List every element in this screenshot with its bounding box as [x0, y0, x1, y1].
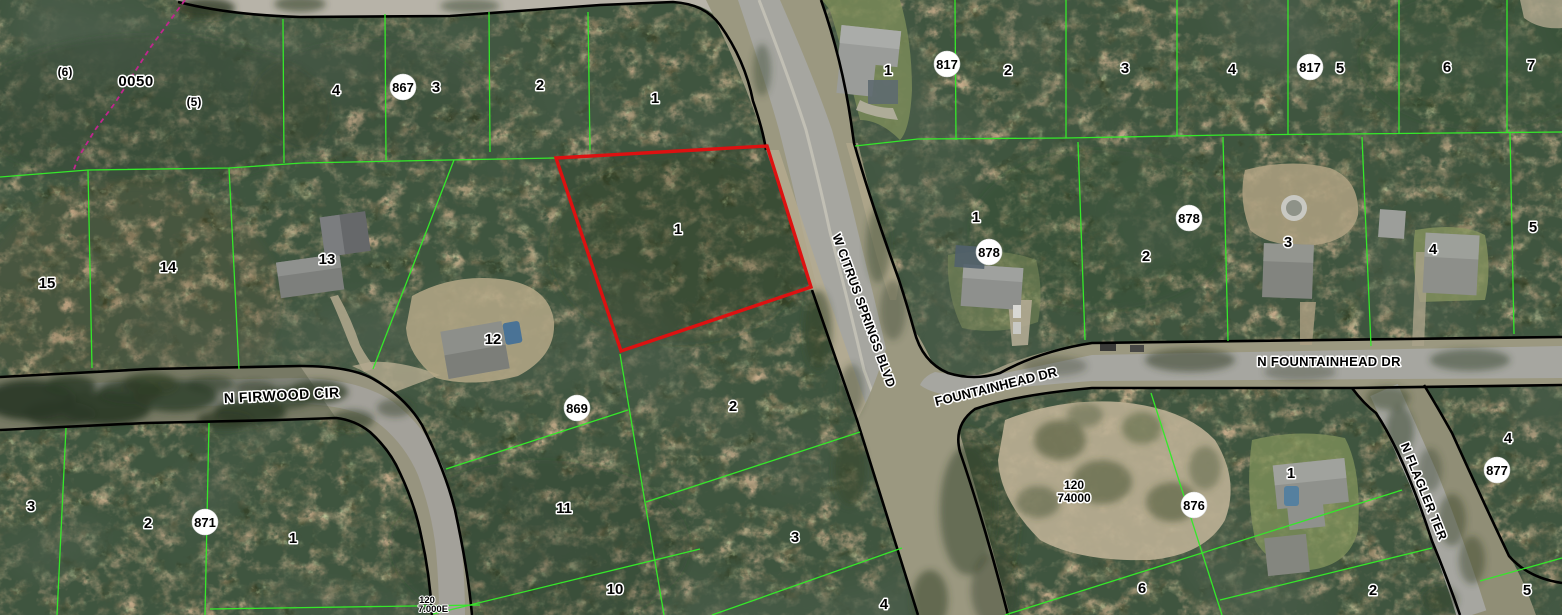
- svg-text:3: 3: [1121, 60, 1129, 77]
- svg-text:13: 13: [319, 251, 336, 268]
- svg-text:7.000E: 7.000E: [418, 604, 448, 615]
- svg-text:120: 120: [1064, 478, 1084, 492]
- svg-text:871: 871: [194, 515, 216, 530]
- svg-text:0050: 0050: [118, 73, 153, 90]
- svg-text:1: 1: [884, 62, 892, 79]
- svg-text:10: 10: [607, 581, 624, 598]
- svg-text:6: 6: [1138, 580, 1146, 597]
- svg-text:N FOUNTAINHEAD DR: N FOUNTAINHEAD DR: [1257, 354, 1401, 369]
- svg-text:877: 877: [1486, 463, 1508, 478]
- svg-text:74000: 74000: [1057, 491, 1091, 505]
- svg-text:(5): (5): [187, 95, 202, 109]
- svg-text:817: 817: [936, 57, 958, 72]
- svg-text:2: 2: [1004, 62, 1012, 79]
- svg-text:1: 1: [289, 530, 297, 547]
- svg-text:4: 4: [1504, 430, 1513, 447]
- svg-text:4: 4: [880, 596, 889, 613]
- svg-text:15: 15: [39, 275, 56, 292]
- svg-text:2: 2: [1142, 248, 1150, 265]
- svg-text:3: 3: [1284, 234, 1292, 251]
- svg-text:869: 869: [566, 401, 588, 416]
- svg-text:7: 7: [1527, 57, 1535, 74]
- svg-text:2: 2: [144, 515, 152, 532]
- svg-text:3: 3: [27, 498, 35, 515]
- svg-text:1: 1: [674, 221, 682, 238]
- svg-text:867: 867: [392, 80, 414, 95]
- svg-text:2: 2: [729, 398, 737, 415]
- svg-text:4: 4: [1429, 241, 1438, 258]
- svg-text:1: 1: [651, 90, 659, 107]
- svg-text:876: 876: [1183, 498, 1205, 513]
- svg-text:4: 4: [1228, 61, 1237, 78]
- svg-text:5: 5: [1523, 582, 1531, 599]
- svg-text:878: 878: [978, 245, 1000, 260]
- svg-text:1: 1: [972, 209, 980, 226]
- svg-text:817: 817: [1299, 60, 1321, 75]
- svg-text:4: 4: [332, 82, 341, 99]
- svg-text:11: 11: [556, 500, 572, 517]
- svg-text:2: 2: [1369, 582, 1377, 599]
- svg-text:(6): (6): [58, 65, 73, 79]
- svg-text:14: 14: [160, 259, 177, 276]
- svg-text:5: 5: [1336, 60, 1344, 77]
- svg-text:12: 12: [485, 331, 502, 348]
- svg-text:3: 3: [432, 79, 440, 96]
- svg-text:878: 878: [1178, 211, 1200, 226]
- svg-text:3: 3: [791, 529, 799, 546]
- svg-text:2: 2: [536, 77, 544, 94]
- svg-text:6: 6: [1443, 59, 1451, 76]
- svg-text:5: 5: [1529, 219, 1537, 236]
- svg-text:1: 1: [1287, 465, 1295, 482]
